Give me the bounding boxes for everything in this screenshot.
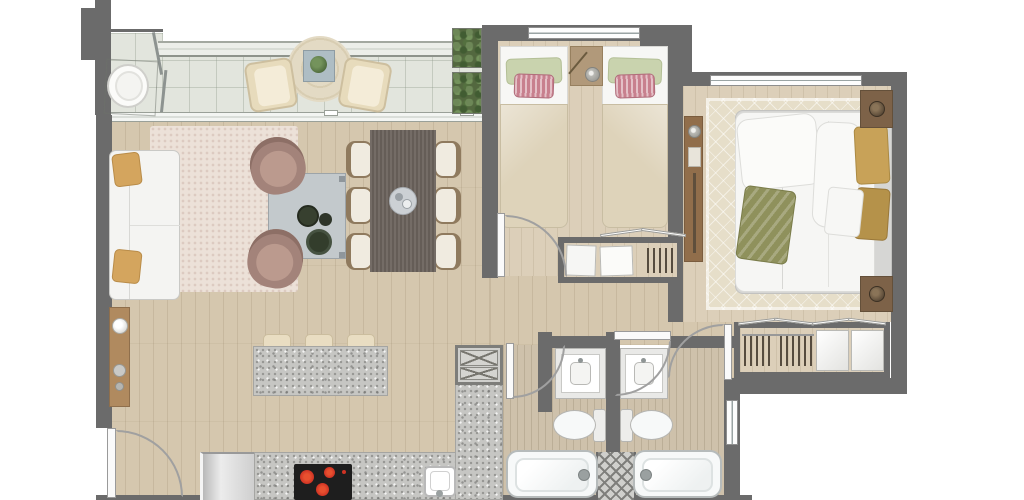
bathroom1-toilet-bowl [553,410,596,440]
closet-panel [599,245,633,276]
tray-item-icon [395,193,403,201]
pillow-pink-icon [615,73,656,98]
kitchen-sink [424,466,456,497]
decor-plate-icon [306,229,332,255]
twin-bedroom-door-leaf [497,213,505,277]
dining-chair [434,187,461,224]
bathtub-faucet-icon [640,469,652,481]
dining-chair [434,233,461,270]
floor-plan [0,0,1024,500]
side-table-plant-icon [310,56,327,73]
table-lamp-icon [688,125,701,138]
bed-blanket [500,104,568,228]
decor-plate-icon [319,213,332,226]
balcony-corner-wall-edge [111,29,163,32]
closet-panel [816,330,849,371]
armchair-seat [256,147,301,191]
vanity-basin [570,362,591,385]
master-pillow-white-icon [735,112,822,192]
entry-door-leaf [107,428,116,498]
armchair-seat [253,241,296,284]
table-lamp-icon [869,101,885,117]
lounge-chair-1 [243,57,298,114]
centerpiece-tray [389,187,417,215]
closet-step-stool [647,248,673,273]
egg-chair-cushion [115,71,143,101]
burner-knob-icon [342,470,346,474]
bathroom-2-window [726,400,738,445]
dining-chair [434,141,461,178]
closet-panel [851,330,884,371]
tall-cabinet [455,345,503,385]
master-pillow-gold-icon [854,125,891,185]
pillow-pink-icon [514,73,555,98]
bed-blanket [602,104,668,228]
twin-bedroom-window [528,27,640,39]
table-lamp-icon [585,67,600,82]
tray-item-icon [402,199,412,209]
sink-faucet-icon [436,490,443,497]
twin-nightstand [570,46,603,86]
decor-item-icon [113,364,126,377]
master-nightstand-top [860,90,893,128]
decor-item-icon [115,382,124,391]
decor-rod-icon [693,173,696,253]
lounge-chair-2 [337,56,393,114]
bathtub-basin [642,458,713,492]
olive-throw [735,185,797,266]
hanging-clothes-icon [744,336,774,366]
sliding-door-handle-icon [324,110,338,116]
wall-partition-twin-master [668,75,683,322]
sink-basin [430,471,450,491]
entry-wall-console [109,307,130,407]
sofa-seat-divider [130,225,180,226]
table-lamp-icon [869,286,885,302]
wall-twin-left [482,25,498,278]
hanging-clothes-icon [780,336,812,366]
vertical-garden-planter [452,72,482,114]
bathtub-faucet-icon [578,469,590,481]
lounge-chair-cushion [347,65,385,108]
bathroom2-bathtub [633,450,722,498]
duct-shaft [596,452,636,500]
wall-left-corner-block [81,8,111,60]
master-pillow-white-icon [824,186,865,238]
decor-bowl-icon [112,318,128,334]
balcony-sliding-door [111,112,490,122]
master-nightstand-bottom [860,276,893,312]
kitchen-island [253,346,388,396]
vertical-garden-planter [452,28,482,68]
bathroom2-door-leaf [614,331,671,340]
sofa-pillow-gold-2 [111,249,142,285]
master-console-shelf [684,116,703,262]
sofa-pillow-gold-1 [111,151,143,187]
master-door-leaf [724,324,732,380]
table-leg-icon [339,176,345,182]
burner-icon [300,470,314,484]
dining-chair [346,187,373,224]
wall-bottom-right [724,378,907,394]
bathroom1-bathtub [506,450,598,498]
cooktop [294,464,352,500]
burner-icon [316,483,329,496]
exterior-area [163,0,490,41]
bathroom2-toilet-bowl [630,410,673,440]
master-bedroom-window [710,75,862,86]
closet-panel [565,244,596,276]
wall-master-right [891,72,907,394]
dining-chair [346,141,373,178]
single-bed-2 [602,46,668,228]
picture-frame-icon [688,147,701,167]
refrigerator [200,452,254,500]
dining-chair [346,233,373,270]
table-leg-icon [339,252,345,258]
lounge-chair-cushion [253,65,291,108]
vanity-faucet-icon [578,358,583,363]
decor-plate-icon [297,205,319,227]
single-bed-1 [500,46,568,228]
dining-table [370,130,436,272]
cabinet-door-icon [460,350,498,366]
cabinet-door-icon [460,367,498,380]
burner-icon [324,467,335,478]
